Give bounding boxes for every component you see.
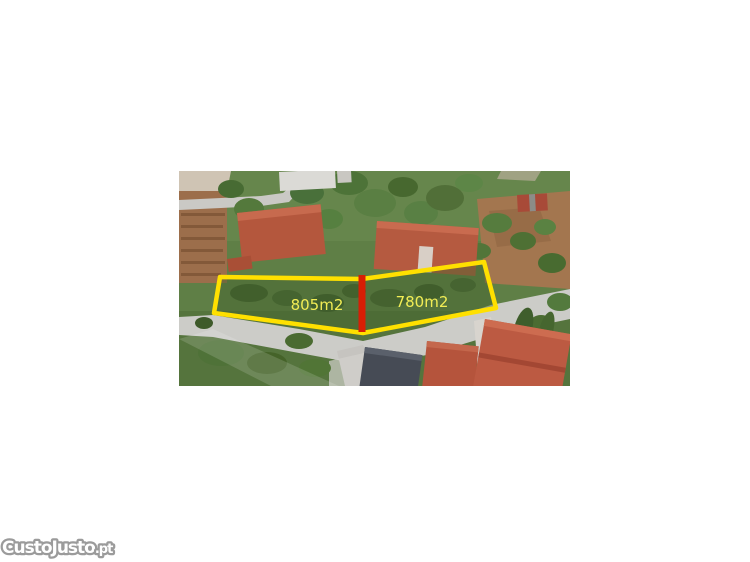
watermark-svg: CustoJusto.pt (0, 528, 170, 562)
listing-photo: 805m2 780m2 (179, 171, 570, 386)
parcel-label-left: 805m2 (291, 296, 344, 314)
watermark: CustoJusto.pt (0, 528, 170, 562)
watermark-suffix: .pt (95, 542, 113, 557)
red-roof-house-a (237, 204, 326, 263)
watermark-brand: CustoJusto (2, 538, 95, 558)
parcel-label-right: 780m2 (396, 293, 449, 311)
page: 805m2 780m2 CustoJusto.pt (0, 0, 750, 562)
satellite-scene: 805m2 780m2 (179, 171, 570, 386)
watermark-text: CustoJusto.pt (2, 538, 113, 558)
red-roof-house-c (422, 341, 479, 386)
red-shed-topright (517, 193, 548, 212)
